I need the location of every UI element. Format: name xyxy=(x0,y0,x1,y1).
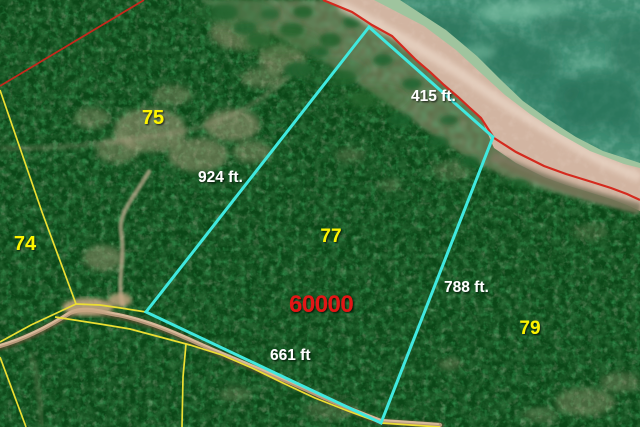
svg-text:79: 79 xyxy=(519,318,540,339)
svg-text:788 ft.: 788 ft. xyxy=(444,279,489,296)
svg-text:415 ft.: 415 ft. xyxy=(411,88,456,105)
svg-text:74: 74 xyxy=(14,233,37,255)
svg-text:75: 75 xyxy=(142,107,164,129)
svg-text:924 ft.: 924 ft. xyxy=(198,169,243,186)
svg-text:77: 77 xyxy=(320,226,341,247)
svg-text:60000: 60000 xyxy=(289,291,353,318)
svg-text:661 ft: 661 ft xyxy=(270,347,311,364)
